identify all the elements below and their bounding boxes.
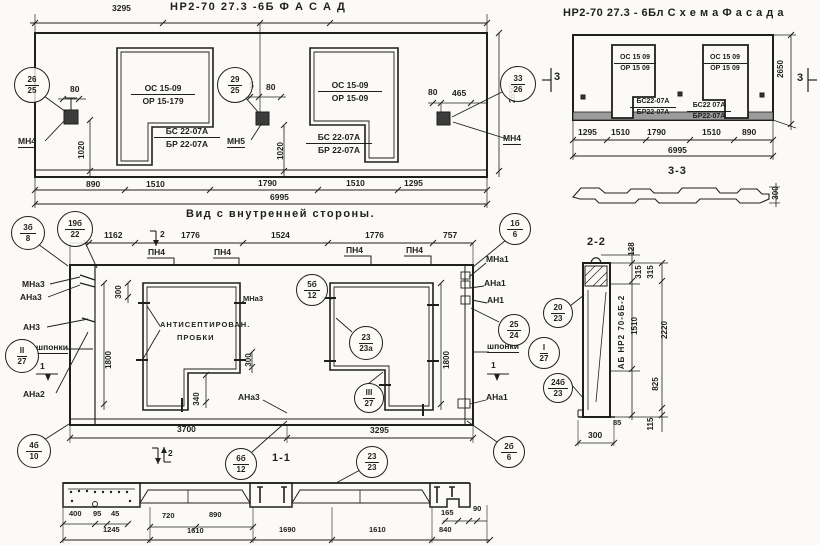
callout-bottom: 6 <box>507 453 511 462</box>
anchor-label-mna1: МНа1 <box>486 255 509 264</box>
or-mark: ОР 15-09 <box>318 92 382 103</box>
scheme-window2-sill-mark: БС22 07А БР22-07А <box>687 102 731 122</box>
dim-1690: 1690 <box>279 526 296 534</box>
dim-300-w1-top: 300 <box>115 272 123 312</box>
dim-1800-left: 1800 <box>105 340 113 380</box>
callout-bottom: 23 <box>554 389 563 398</box>
dim-1776-b: 1776 <box>365 231 384 240</box>
callout-top: 24б <box>548 379 568 389</box>
blueprint-canvas: НР2-70 27.3 -6Б Ф А С А Д 3295 ОС 15-09 … <box>0 0 820 545</box>
anchor-label-an3: АН3 <box>23 323 40 332</box>
callout-20-23: 2023 <box>543 298 573 328</box>
dim-6995-scheme: 6995 <box>668 146 687 155</box>
keys-label-left: шпонки <box>36 343 68 354</box>
callout-23-23: 2323 <box>356 446 388 478</box>
anchor-label-mna3-window: МНа3 <box>243 295 263 303</box>
callout-top: 33 <box>511 75 526 85</box>
br-mark: БР 22-07А <box>306 144 372 155</box>
scheme-window1-mark: ОС 15 09 ОР 15 09 <box>614 54 656 74</box>
callout-II-27: II27 <box>5 339 39 373</box>
callout-4b-10: 4б10 <box>17 434 51 468</box>
anchor-label-mna3: МНа3 <box>22 280 45 289</box>
anchor-label-ana3-left: АНа3 <box>20 293 42 302</box>
loop-label-pn4-2: ПН4 <box>214 248 231 257</box>
loop-label-pn4-1: ПН4 <box>148 248 165 257</box>
callout-top: III <box>363 389 376 399</box>
callout-top: 1б <box>507 220 522 230</box>
callout-bottom: 25 <box>28 86 37 95</box>
section-mark-1-left: 1 <box>40 362 45 371</box>
bs-mark: БС 22-07А <box>306 132 372 144</box>
callout-26-25: 2625 <box>14 67 50 103</box>
callout-bottom: 12 <box>308 291 317 300</box>
callout-top: 4б <box>26 442 41 452</box>
callout-top: 26 <box>25 76 40 86</box>
callout-I-27: I27 <box>528 337 560 369</box>
br-mark: БР 22-07А <box>154 138 220 149</box>
dim-2650-scheme: 2650 <box>777 49 785 89</box>
dim-840: 840 <box>439 526 452 534</box>
dim-2220: 2220 <box>661 310 669 350</box>
callout-bottom: 27 <box>540 354 549 363</box>
os-mark: ОС 15 09 <box>703 54 747 64</box>
dim-1790-s: 1790 <box>647 128 666 137</box>
dim-6995-facade: 6995 <box>270 193 289 202</box>
panel-stamp-label: АБ НР2 70-6Б-2 <box>618 282 626 382</box>
callout-top: 23 <box>359 334 374 344</box>
callout-bottom: 27 <box>18 357 27 366</box>
dim-340: 340 <box>193 379 201 419</box>
callout-bottom: 12 <box>237 465 246 474</box>
facade-window2-sill-mark: БС 22-07А БР 22-07А <box>306 132 372 155</box>
callout-29-25: 2925 <box>217 67 253 103</box>
callout-top: 20 <box>551 304 566 314</box>
dim-300-profile: 300 <box>772 173 780 213</box>
section-1-1-title: 1-1 <box>272 453 291 464</box>
dim-1610-b: 1610 <box>369 526 386 534</box>
callout-bottom: 6 <box>513 230 517 239</box>
callout-bottom: 23а <box>359 344 372 353</box>
dim-1510-sb: 1510 <box>702 128 721 137</box>
anchor-label-ana3-right: АНа3 <box>238 393 260 402</box>
callout-top: 23 <box>365 453 380 463</box>
dim-315-b: 315 <box>647 252 655 292</box>
section-2-2-title: 2-2 <box>587 237 606 248</box>
os-mark: ОС 15 09 <box>614 54 656 64</box>
dim-1510-sa: 1510 <box>611 128 630 137</box>
callout-2b-6: 2б6 <box>493 436 525 468</box>
dim-85: 85 <box>613 419 621 427</box>
scheme-window1-sill-mark: БС22-07А БР22-07А <box>630 98 676 118</box>
bs-mark: БС 22-07А <box>154 126 220 138</box>
dim-80-right: 80 <box>428 88 437 97</box>
facade-window1-mark: ОС 15-09 ОР 15-179 <box>131 83 195 106</box>
callout-top: I <box>540 344 548 354</box>
callout-bottom: 22 <box>71 230 80 239</box>
anchor-label-mn4-left: МН4 <box>18 137 36 148</box>
scheme-window2-mark: ОС 15 09 ОР 15 09 <box>703 54 747 74</box>
dim-3700: 3700 <box>177 425 196 434</box>
dim-465: 465 <box>452 89 466 98</box>
callout-1b-6: 1б6 <box>499 213 531 245</box>
callout-24b-23: 24б23 <box>543 373 573 403</box>
callout-bottom: 24 <box>510 331 519 340</box>
anchor-label-ana2: АНа2 <box>23 390 45 399</box>
dim-1510-b: 1510 <box>346 179 365 188</box>
anchor-label-ana1: АНа1 <box>484 279 506 288</box>
antiseptic-plugs-line1: АНТИСЕПТИРОВАН. <box>160 321 250 329</box>
callout-3b-8: 3б8 <box>11 216 45 250</box>
anchor-label-mn5: МН5 <box>227 137 245 148</box>
dim-1295-s: 1295 <box>578 128 597 137</box>
dim-300-sec22: 300 <box>588 431 602 440</box>
facade-window2-mark: ОС 15-09 ОР 15-09 <box>318 80 382 103</box>
bs-mark: БС22 07А <box>687 102 731 112</box>
callout-bottom: 8 <box>26 234 30 243</box>
callout-top: 2б <box>501 443 516 453</box>
dim-890: 890 <box>86 180 100 189</box>
callout-6b-12: 6б12 <box>225 448 257 480</box>
dim-115: 115 <box>647 404 655 444</box>
facade-window1-sill-mark: БС 22-07А БР 22-07А <box>154 126 220 149</box>
dim-757: 757 <box>443 231 457 240</box>
dim-1295: 1295 <box>404 179 423 188</box>
dim-80-left: 80 <box>70 85 79 94</box>
os-mark: ОС 15-09 <box>318 80 382 92</box>
dim-90: 90 <box>473 505 481 513</box>
dim-1020-left: 1020 <box>78 130 86 170</box>
dim-1510-a: 1510 <box>146 180 165 189</box>
dim-300-w1-right: 300 <box>245 340 253 380</box>
inner-view-title: Вид с внутренней стороны. <box>186 209 375 220</box>
callout-bottom: 27 <box>365 399 374 408</box>
callout-bottom: 23 <box>554 314 563 323</box>
dim-1800-right: 1800 <box>443 340 451 380</box>
dim-1020-mid: 1020 <box>277 131 285 171</box>
dim-1524: 1524 <box>271 231 290 240</box>
callout-top: II <box>17 347 27 357</box>
callout-top: 19б <box>65 220 85 230</box>
callout-top: 25 <box>507 321 522 331</box>
callout-III-27: III27 <box>354 383 384 413</box>
dim-3295-top: 3295 <box>112 4 131 13</box>
callout-top: 6б <box>233 455 248 465</box>
section-mark-2-bottom: 2 <box>168 449 173 458</box>
callout-bottom: 23 <box>368 463 377 472</box>
dim-1776-a: 1776 <box>181 231 200 240</box>
callout-top: 29 <box>228 76 243 86</box>
dim-890-sec: 890 <box>209 511 222 519</box>
bs-mark: БС22-07А <box>630 98 676 108</box>
drawing-linework <box>0 0 820 545</box>
section-1-1-lines <box>60 421 493 543</box>
dim-400: 400 <box>69 510 82 518</box>
br-mark: БР22-07А <box>687 112 731 121</box>
dim-825: 825 <box>652 364 660 404</box>
facade-title: НР2-70 27.3 -6Б Ф А С А Д <box>170 2 346 13</box>
or-mark: ОР 15 09 <box>703 64 747 73</box>
or-mark: ОР 15 09 <box>614 64 656 73</box>
dim-165: 165 <box>441 509 454 517</box>
section-mark-1-right: 1 <box>491 361 496 370</box>
anchor-label-mn4-right: МН4 <box>503 134 521 145</box>
dim-1245: 1245 <box>103 526 120 534</box>
callout-bottom: 10 <box>30 452 39 461</box>
callout-top: 3б <box>20 224 35 234</box>
dim-890-s: 890 <box>742 128 756 137</box>
dim-720: 720 <box>162 512 175 520</box>
dim-315-a: 315 <box>635 252 643 292</box>
loop-label-pn4-3: ПН4 <box>346 246 363 255</box>
dim-1790: 1790 <box>258 179 277 188</box>
section-mark-3-right: 3 <box>797 73 804 84</box>
callout-25-24: 2524 <box>498 314 530 346</box>
dim-1510-sec: 1510 <box>631 306 639 346</box>
or-mark: ОР 15-179 <box>131 95 195 106</box>
callout-5b-12: 5б12 <box>296 274 328 306</box>
os-mark: ОС 15-09 <box>131 83 195 95</box>
callout-19b-22: 19б22 <box>57 211 93 247</box>
section-mark-3-left: 3 <box>554 72 561 83</box>
callout-33-26: 3326 <box>500 66 536 102</box>
callout-23-23a: 2323а <box>349 326 383 360</box>
callout-bottom: 25 <box>231 86 240 95</box>
dim-3295-bottom: 3295 <box>370 426 389 435</box>
br-mark: БР22-07А <box>630 108 676 117</box>
callout-bottom: 26 <box>514 85 523 94</box>
scheme-title: НР2-70 27.3 - 6Бл С х е м а Ф а с а д а <box>563 8 784 19</box>
section-3-3-label: 3-3 <box>668 166 687 177</box>
callout-top: 5б <box>304 281 319 291</box>
dim-1162: 1162 <box>104 231 122 240</box>
anchor-label-ana1-bottom: АНа1 <box>486 393 508 402</box>
dim-1610-a: 1610 <box>187 527 204 535</box>
anchor-label-an1: АН1 <box>487 296 504 305</box>
dim-95: 95 <box>93 510 101 518</box>
loop-label-pn4-4: ПН4 <box>406 246 423 255</box>
dim-45: 45 <box>111 510 119 518</box>
dim-80-mid: 80 <box>266 83 275 92</box>
antiseptic-plugs-line2: ПРОБКИ <box>177 334 215 342</box>
section-mark-2-top: 2 <box>160 230 165 239</box>
